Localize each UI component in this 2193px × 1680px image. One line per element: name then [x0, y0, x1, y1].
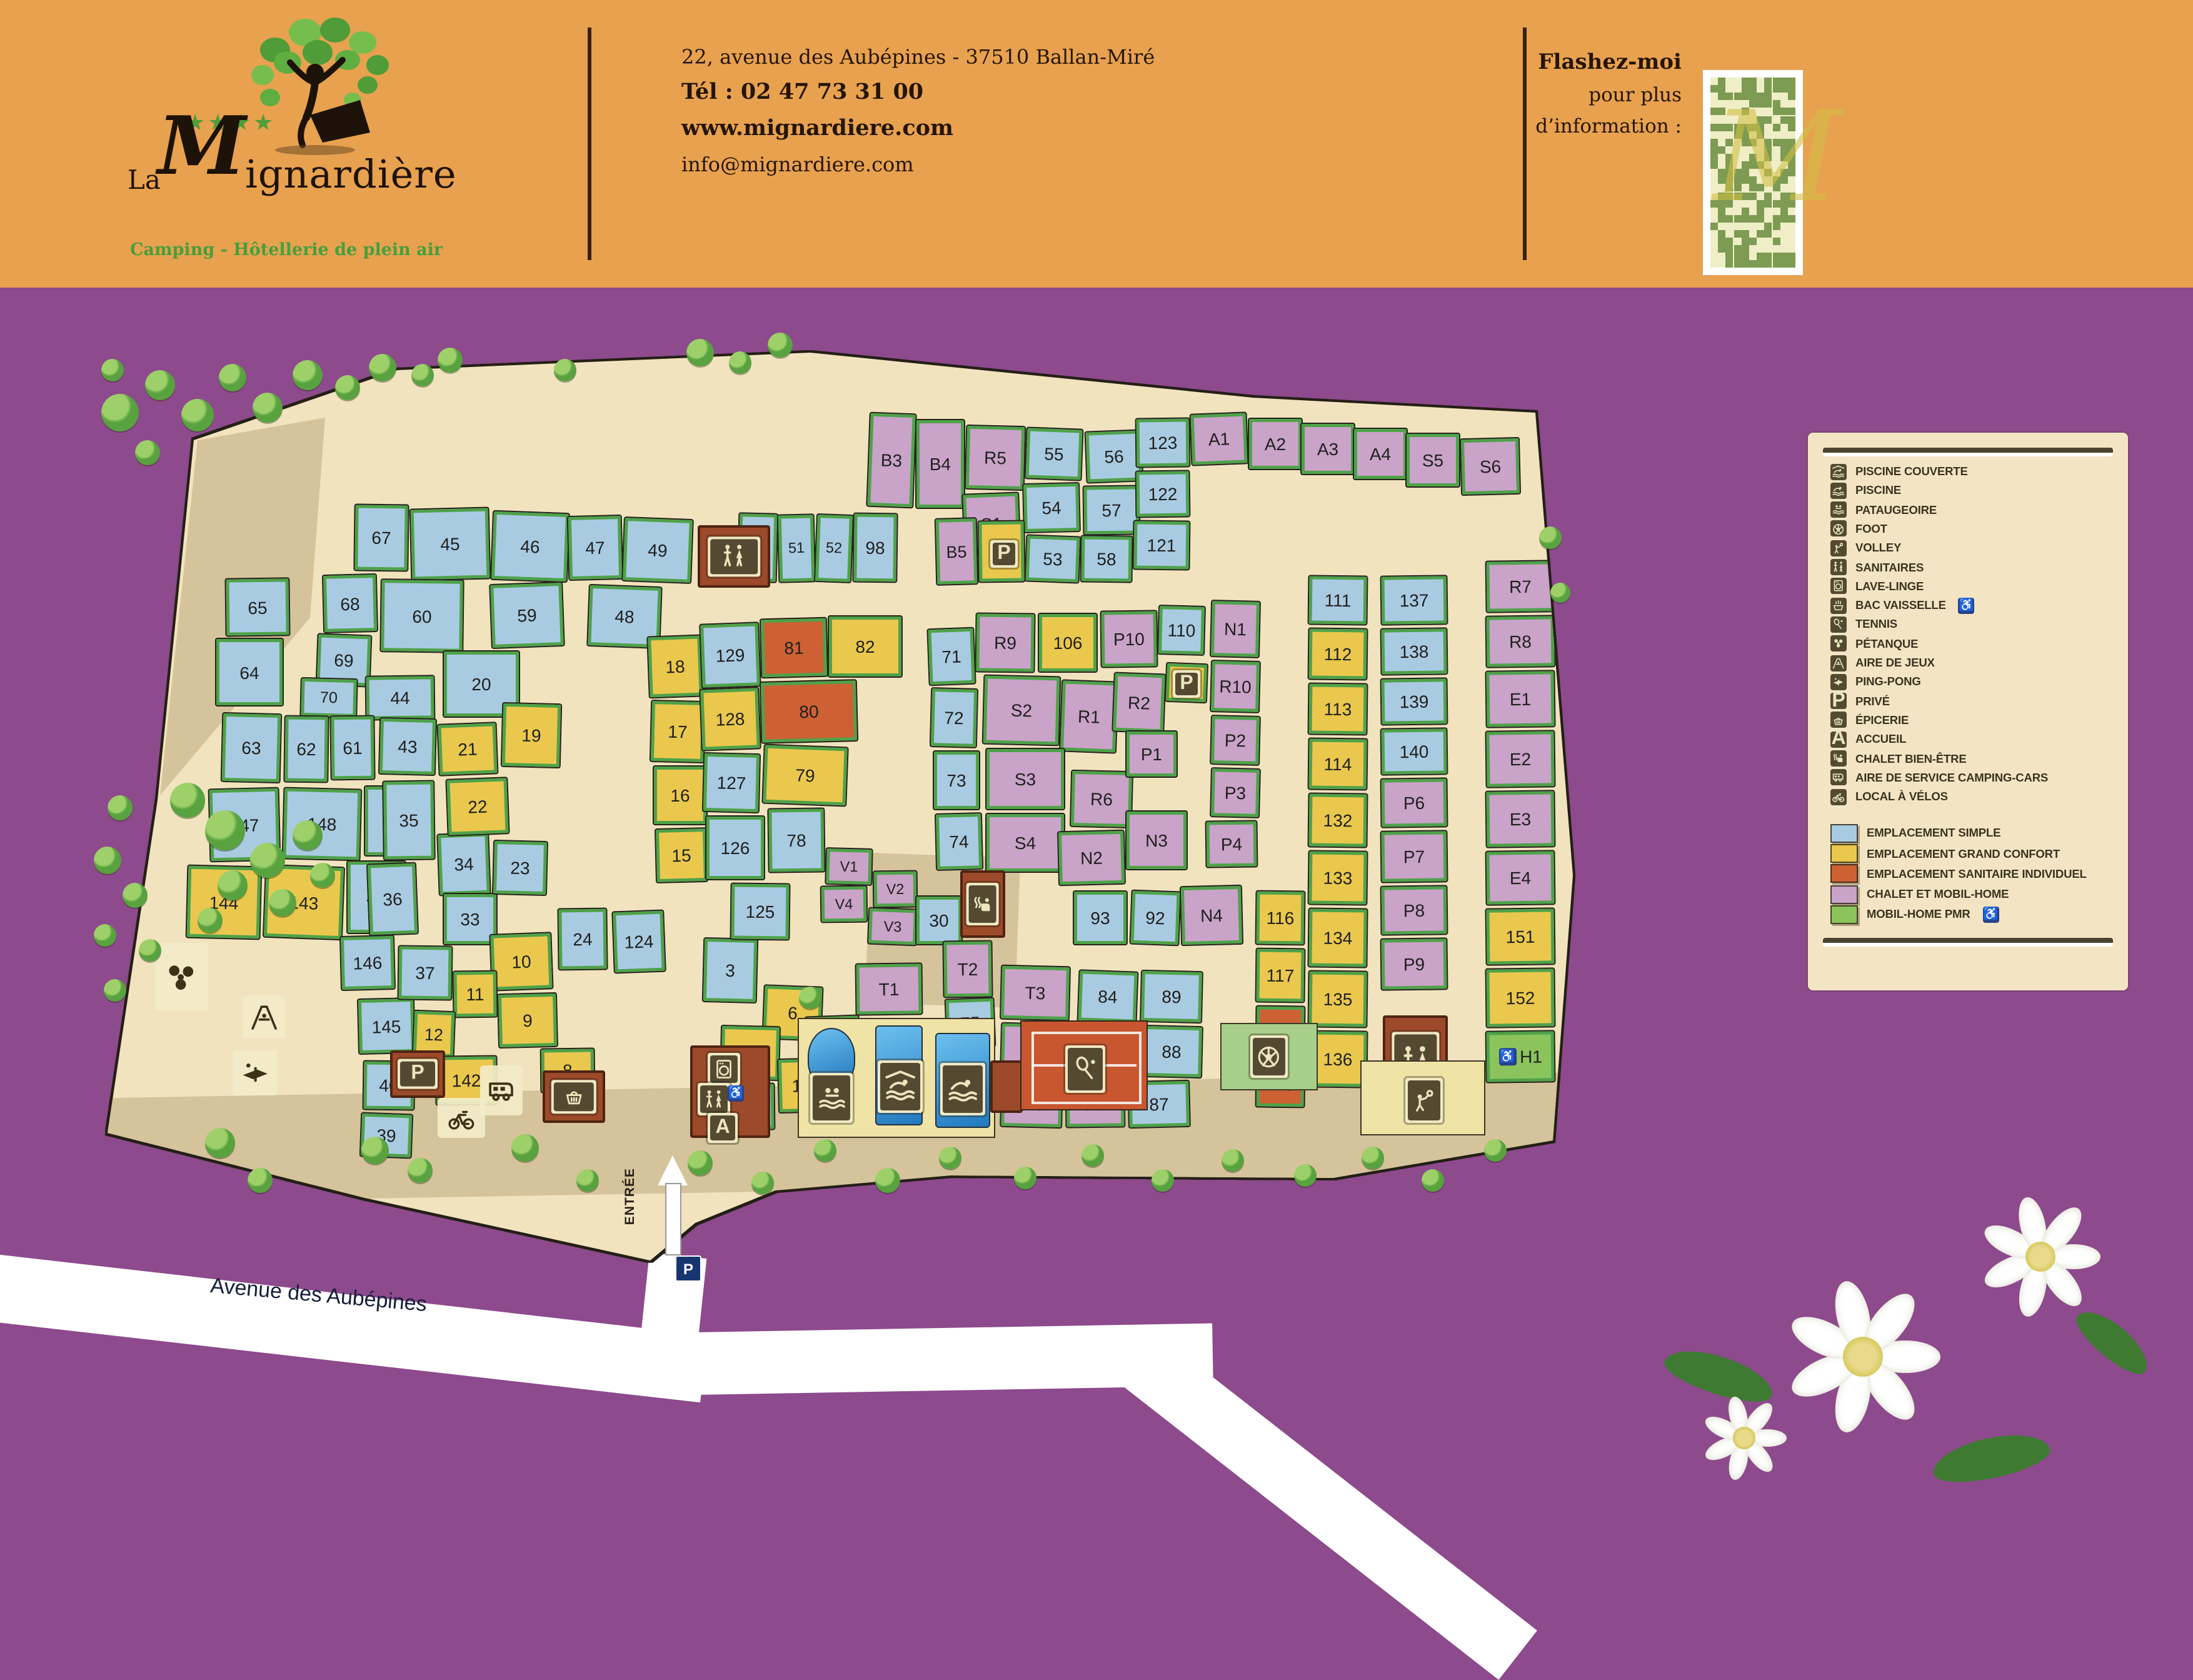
plot-label: 139: [1399, 692, 1428, 712]
plot-23: 23: [492, 840, 548, 896]
plot-label: 16: [670, 785, 690, 805]
plot-label: R5: [984, 448, 1007, 468]
plot-label: 124: [624, 931, 654, 952]
legend-category: CHALET ET MOBIL-HOME: [1830, 885, 2009, 903]
piscine-couverte-icone: [878, 1060, 923, 1113]
tree-icon: [814, 1139, 836, 1162]
address-line: 22, avenue des Aubépines - 37510 Ballan-…: [681, 45, 1155, 69]
local-velos: [438, 1098, 485, 1138]
plot-89: 89: [1140, 970, 1203, 1024]
plot-label: 111: [1325, 590, 1352, 611]
volley-icone: [1405, 1078, 1443, 1123]
plot-78: 78: [767, 807, 825, 873]
tennis-icon: [1068, 1048, 1103, 1090]
plot-R9: R9: [975, 612, 1035, 673]
plot-57: 57: [1083, 485, 1141, 535]
lave-linge-icon: [1830, 578, 1847, 595]
legend-label: LAVE-LINGE: [1855, 580, 1924, 593]
legend-label: PING-PONG: [1855, 676, 1921, 688]
tree-icon: [101, 359, 124, 381]
plot-45: 45: [409, 506, 491, 581]
plot-22: 22: [445, 777, 509, 837]
plot-N1: N1: [1210, 600, 1261, 658]
plot-129: 129: [699, 621, 761, 688]
tree-icon: [123, 883, 148, 908]
flower-center: [1843, 1337, 1883, 1377]
plot-P7: P7: [1380, 830, 1448, 883]
aire-jeux-icon: [245, 998, 283, 1035]
plot-label: P1: [1141, 744, 1162, 764]
tree-icon: [1081, 1144, 1104, 1167]
plot-label: V2: [886, 881, 904, 897]
plot-label: R2: [1128, 692, 1151, 713]
legend-label: AIRE DE JEUX: [1855, 656, 1935, 669]
plot-label: P8: [1403, 900, 1425, 920]
plot-label: A2: [1265, 434, 1286, 454]
legend-label: LOCAL À VÉLOS: [1855, 790, 1948, 803]
plot-37: 37: [397, 945, 453, 1000]
aire-jeux-icon: [1830, 655, 1847, 671]
plot-24: 24: [557, 908, 608, 971]
plot-P6: P6: [1380, 777, 1448, 828]
plot-label: 112: [1323, 644, 1352, 665]
plot-54: 54: [1022, 482, 1081, 533]
tree-icon: [1550, 583, 1570, 603]
plot-73: 73: [933, 750, 980, 810]
plot-label: 61: [343, 738, 363, 758]
foot-icone: [1250, 1035, 1288, 1078]
tree-icon: [205, 810, 245, 850]
plot-label: S6: [1479, 456, 1501, 477]
plot-123: 123: [1135, 417, 1191, 468]
plot-label: 126: [721, 838, 750, 858]
plot-label: S5: [1422, 450, 1443, 470]
prive-icon: P: [400, 1062, 435, 1087]
plot-label: P6: [1403, 793, 1425, 813]
plot-122: 122: [1135, 470, 1191, 518]
plot-label: 49: [648, 540, 668, 560]
plot-label: 36: [383, 888, 403, 909]
plot-3: 3: [702, 937, 759, 1003]
plot-84: 84: [1076, 969, 1138, 1024]
plot-label: 71: [941, 646, 961, 666]
legend-item-lave-linge: LAVE-LINGE: [1830, 578, 1924, 595]
plot-114: 114: [1307, 737, 1368, 790]
legend-item-velo: LOCAL À VÉLOS: [1830, 788, 1948, 805]
logo-tagline: Camping - Hôtellerie de plein air: [130, 240, 443, 260]
parking-nord-icone: P: [990, 540, 1018, 568]
plot-label: 132: [1323, 810, 1352, 831]
plot-label: 123: [1148, 433, 1177, 453]
plot-label: 140: [1399, 742, 1428, 762]
tree-icon: [799, 987, 821, 1009]
plot-label: 62: [296, 739, 316, 759]
chalet-bien-etre: [960, 870, 1005, 938]
category-swatch: [1830, 844, 1858, 863]
legend-label: VOLLEY: [1855, 541, 1901, 554]
legend-item-pataugeoire: PATAUGEOIRE: [1830, 501, 1937, 518]
poster: Avenue des Aubépines 6745464749686059486…: [0, 0, 2193, 1551]
kiosque: [990, 1060, 1023, 1113]
plot-label: E1: [1510, 689, 1532, 709]
legend-label: PATAUGEOIRE: [1855, 503, 1937, 516]
plot-93: 93: [1073, 890, 1128, 945]
pmr-accueil: ♿: [728, 1085, 744, 1102]
tree-icon: [1152, 1169, 1174, 1192]
plot-R5: R5: [965, 425, 1026, 491]
plot-label: 82: [855, 636, 875, 656]
plot-label: P2: [1224, 730, 1246, 751]
plot-128: 128: [699, 687, 761, 751]
plot-label: 145: [371, 1015, 401, 1036]
plot-label: 43: [398, 737, 418, 757]
tree-icon: [170, 783, 205, 818]
bac-vaisselle-icon: [1830, 597, 1847, 613]
plot-116: 116: [1255, 890, 1305, 946]
plot-label: 137: [1399, 590, 1428, 611]
legend-label: ÉPICERIE: [1855, 714, 1909, 727]
epicerie-icon: [1830, 712, 1847, 728]
petanque-terrain: [155, 943, 208, 1010]
velo-icon: [440, 1100, 483, 1135]
plot-label: 53: [1043, 548, 1063, 569]
plot-47: 47: [567, 515, 624, 581]
plot-label: 151: [1505, 927, 1535, 947]
plot-label: 142: [451, 1070, 481, 1091]
plot-label: S3: [1015, 769, 1036, 789]
plot-label: 12: [424, 1024, 443, 1044]
plot-label: V3: [883, 918, 902, 935]
plot-A2: A2: [1248, 418, 1303, 470]
plot-112: 112: [1307, 627, 1368, 680]
qr-code: M: [1703, 70, 1803, 275]
plot-145: 145: [357, 997, 416, 1055]
category-swatch: [1830, 865, 1858, 883]
plot-label: E4: [1510, 868, 1532, 888]
plot-148: 148: [282, 787, 363, 861]
plot-36: 36: [366, 862, 419, 937]
plot-label: 30: [929, 910, 948, 930]
plot-label: V4: [835, 896, 853, 912]
plot-70: 70: [299, 677, 358, 718]
foot-icon: [1830, 521, 1847, 537]
plot-67: 67: [353, 503, 409, 571]
plot-58: 58: [1080, 535, 1133, 583]
camping-car-icon: [483, 1068, 520, 1113]
plot-A4: A4: [1353, 428, 1408, 480]
tree-icon: [411, 364, 434, 386]
plot-P9: P9: [1380, 937, 1448, 990]
plot-label: 6: [788, 1003, 798, 1024]
plot-P10: P10: [1100, 610, 1158, 668]
plot-11: 11: [453, 970, 498, 1019]
tree-icon: [335, 375, 360, 400]
tree-icon: [198, 908, 223, 933]
plot-label: S2: [1010, 700, 1032, 721]
plot-121: 121: [1133, 520, 1191, 570]
plot-135: 135: [1307, 970, 1368, 1028]
plot-label: 79: [795, 765, 815, 785]
piscine-icon: [943, 1065, 983, 1113]
plot-label: 60: [412, 606, 432, 626]
plot-A1: A1: [1189, 411, 1248, 466]
plot-label: A4: [1370, 444, 1391, 464]
plot-T1: T1: [855, 962, 923, 1015]
aire-service-camping-cars: [480, 1065, 523, 1115]
tree-icon: [250, 843, 285, 878]
plot-label: 59: [517, 605, 537, 625]
plot-label: 57: [1102, 500, 1122, 520]
plot-R8: R8: [1485, 615, 1555, 668]
sanitaires-accueil: [698, 1083, 730, 1115]
tree-icon: [875, 1168, 900, 1193]
legend-bottom-bar2: [1823, 938, 2113, 947]
bien-etre-icon: [969, 885, 997, 923]
plot-label: 65: [248, 597, 268, 617]
pataugeoire-icon: [1830, 501, 1847, 518]
tree-icon: [1484, 1139, 1507, 1162]
plot-134: 134: [1307, 907, 1368, 968]
tree-icon: [94, 924, 116, 947]
plot-79: 79: [761, 744, 848, 807]
epicerie-icon: [554, 1082, 594, 1111]
plot-label: 67: [371, 528, 391, 548]
plot-N3: N3: [1125, 810, 1188, 870]
plot-P2: P2: [1210, 715, 1261, 766]
tree-icon: [101, 394, 139, 431]
plot-label: 24: [573, 929, 593, 949]
plot-label: 117: [1266, 965, 1294, 986]
plot-68: 68: [322, 573, 378, 633]
plot-label: 135: [1323, 989, 1352, 1010]
plot-151: 151: [1485, 907, 1555, 965]
legend-label: PRIVÉ: [1855, 695, 1890, 707]
prive-icon: P: [993, 543, 1015, 565]
plot-label: 129: [715, 645, 745, 666]
pingpong-icon: [235, 1053, 275, 1093]
pmr-badge-icon: ♿: [1983, 906, 1999, 922]
plot-label: R8: [1509, 631, 1532, 651]
plot-label: N2: [1080, 848, 1103, 868]
plot-R7: R7: [1485, 560, 1555, 613]
petanque-icon: [1830, 635, 1847, 651]
legend-label: SANITAIRES: [1855, 561, 1924, 573]
plot-label: 72: [944, 708, 964, 728]
plot-V1: V1: [825, 847, 873, 886]
plot-label: P4: [1221, 834, 1243, 854]
plot-label: P9: [1403, 954, 1425, 974]
plot-T2: T2: [942, 940, 993, 998]
legend-item-prive: PPRIVÉ: [1830, 692, 1890, 710]
plot-S5: S5: [1405, 433, 1460, 488]
plot-label: 81: [784, 638, 804, 658]
plot-label: 10: [511, 951, 531, 972]
plot-label: 19: [521, 725, 541, 746]
tree-icon: [768, 333, 793, 358]
plot-S6: S6: [1460, 437, 1521, 496]
plot-B5: B5: [935, 517, 979, 586]
plot-label: 35: [399, 810, 419, 830]
plot-126: 126: [705, 815, 765, 880]
legend-top-bar: [1823, 448, 2113, 456]
plot-label: N4: [1200, 905, 1223, 926]
tree-icon: [751, 1172, 774, 1194]
flash-line-2: pour plus: [1425, 84, 1682, 106]
tree-icon: [293, 820, 323, 850]
header-divider-1: [588, 28, 591, 260]
flash-block: Flashez-moi pour plus d’information :: [1425, 50, 1682, 138]
plot-label: 56: [1104, 446, 1124, 466]
tree-icon: [939, 1147, 961, 1169]
plot-label: 11: [466, 984, 484, 1004]
flower-center: [1733, 1427, 1755, 1449]
legend-label: FOOT: [1855, 523, 1887, 535]
avenue-parking-sign: P: [675, 1255, 701, 1282]
website-line: www.mignardiere.com: [681, 116, 1155, 141]
tree-icon: [310, 863, 335, 888]
tree-icon: [1294, 1164, 1317, 1187]
tree-icon: [108, 795, 133, 820]
plot-V3: V3: [867, 907, 918, 947]
plot-label: 23: [510, 858, 530, 878]
parking-centre-icone: P: [1173, 670, 1200, 698]
tree-icon: [219, 364, 246, 391]
plot-label: B5: [946, 542, 967, 561]
plot-label: 116: [1266, 908, 1294, 928]
plot-label: B3: [880, 450, 902, 470]
plot-T3: T3: [1000, 965, 1071, 1022]
tree-icon: [408, 1158, 433, 1183]
tree-icon: [1539, 526, 1562, 549]
sanitaires-icon: [700, 1085, 728, 1113]
legend-item-bien-etre: CHALET BIEN-ÊTRE: [1830, 750, 1967, 767]
entrance-label: ENTRÉE: [623, 1168, 638, 1225]
plot-label: T2: [957, 959, 978, 979]
plot-30: 30: [915, 895, 963, 945]
velo-icon: [1830, 788, 1847, 805]
plot-label: N1: [1224, 619, 1247, 640]
plot-74: 74: [935, 812, 983, 871]
parking-sud: P: [390, 1050, 445, 1098]
piscine-icone: [940, 1063, 985, 1115]
plot-140: 140: [1380, 727, 1448, 775]
plot-label: B4: [930, 454, 951, 474]
plot-34: 34: [436, 832, 491, 896]
plot-137: 137: [1380, 575, 1448, 625]
legend-item-tennis: TENNIS: [1830, 616, 1897, 633]
legend-item-bac-vaisselle: BAC VAISSELLE♿: [1830, 596, 1975, 614]
plot-18: 18: [646, 634, 704, 698]
legend-item-petanque: PÉTANQUE: [1830, 635, 1918, 652]
plot-label: 98: [865, 538, 885, 558]
plot-label: 106: [1053, 633, 1083, 653]
tree-icon: [269, 889, 296, 917]
legend-label: CHALET BIEN-ÊTRE: [1855, 752, 1967, 765]
plot-label: A3: [1317, 439, 1338, 459]
plot-label: 134: [1323, 928, 1352, 948]
legend-item-camping-car: AIRE DE SERVICE CAMPING-CARS: [1830, 769, 2048, 787]
plot-label: 74: [949, 832, 969, 852]
plot-152: 152: [1485, 967, 1555, 1028]
qr-watermark: M: [1713, 95, 1841, 220]
legend-item-piscine: PISCINE: [1830, 482, 1901, 500]
phone-line: Tél : 02 47 73 31 00: [681, 80, 1155, 105]
plot-label: 152: [1505, 988, 1535, 1009]
plot-127: 127: [702, 752, 761, 813]
tree-icon: [145, 370, 175, 400]
plot-80: 80: [760, 679, 858, 744]
legend-item-aire-jeux: AIRE DE JEUX: [1830, 654, 1935, 671]
plot-label: 37: [415, 963, 435, 983]
flash-line-1: Flashez-moi: [1425, 50, 1682, 75]
legend-label: ACCUEIL: [1855, 733, 1906, 745]
plot-label: E2: [1510, 749, 1532, 769]
plot-S4: S4: [985, 813, 1065, 873]
tree-icon: [1362, 1147, 1384, 1169]
tree-icon: [104, 979, 126, 1002]
plot-124: 124: [611, 909, 666, 973]
tree-icon: [205, 1128, 235, 1158]
plot-E4: E4: [1485, 850, 1555, 905]
plot-label: 51: [788, 540, 805, 557]
plot-label: 146: [353, 952, 382, 973]
plot-label: 114: [1323, 754, 1352, 775]
sanitaires-icon: [710, 539, 758, 573]
plot-19: 19: [501, 702, 563, 768]
plot-label: 121: [1147, 535, 1176, 556]
plot-label: 80: [799, 702, 819, 722]
tennis-icon: [1830, 616, 1847, 633]
plot-label: 63: [241, 738, 261, 758]
plot-label: 88: [1162, 1042, 1182, 1062]
tree-icon: [1422, 1169, 1444, 1192]
plot-label: T1: [878, 979, 899, 999]
accueil-icon: A: [710, 1115, 735, 1140]
pingpong-icon: [1830, 674, 1847, 690]
plot-label: 64: [239, 662, 259, 682]
legend-category: EMPLACEMENT SIMPLE: [1830, 825, 2000, 842]
plot-P1: P1: [1125, 730, 1178, 778]
lave-linge-accueil: [708, 1053, 740, 1085]
plot-R2: R2: [1112, 671, 1166, 733]
plot-label: 3: [725, 960, 735, 980]
legend-item-piscine-couverte: PISCINE COUVERTE: [1830, 463, 1968, 480]
plot-label: P10: [1113, 629, 1145, 650]
plot-label: 55: [1044, 443, 1064, 464]
plot-146: 146: [339, 935, 396, 991]
plot-label: S4: [1015, 833, 1036, 853]
plot-43: 43: [378, 717, 437, 776]
plot-label: 92: [1145, 907, 1165, 928]
plot-label: T3: [1025, 983, 1045, 1003]
legend-label: TENNIS: [1855, 618, 1897, 631]
plot-label: 133: [1323, 868, 1352, 888]
plot-65: 65: [224, 577, 290, 636]
tree-icon: [438, 348, 463, 373]
plot-E1: E1: [1485, 670, 1555, 728]
tree-icon: [139, 939, 161, 962]
pataugeoire-icone: [810, 1073, 853, 1123]
plot-15: 15: [655, 827, 708, 883]
plot-117: 117: [1255, 948, 1305, 1003]
plot-label: 46: [520, 536, 540, 556]
plot-label: 58: [1096, 549, 1117, 569]
plot-P8: P8: [1380, 885, 1448, 935]
plot-label: 68: [340, 593, 360, 614]
category-swatch: [1830, 905, 1858, 923]
plot-P3: P3: [1210, 767, 1261, 818]
tree-icon: [511, 1134, 539, 1162]
